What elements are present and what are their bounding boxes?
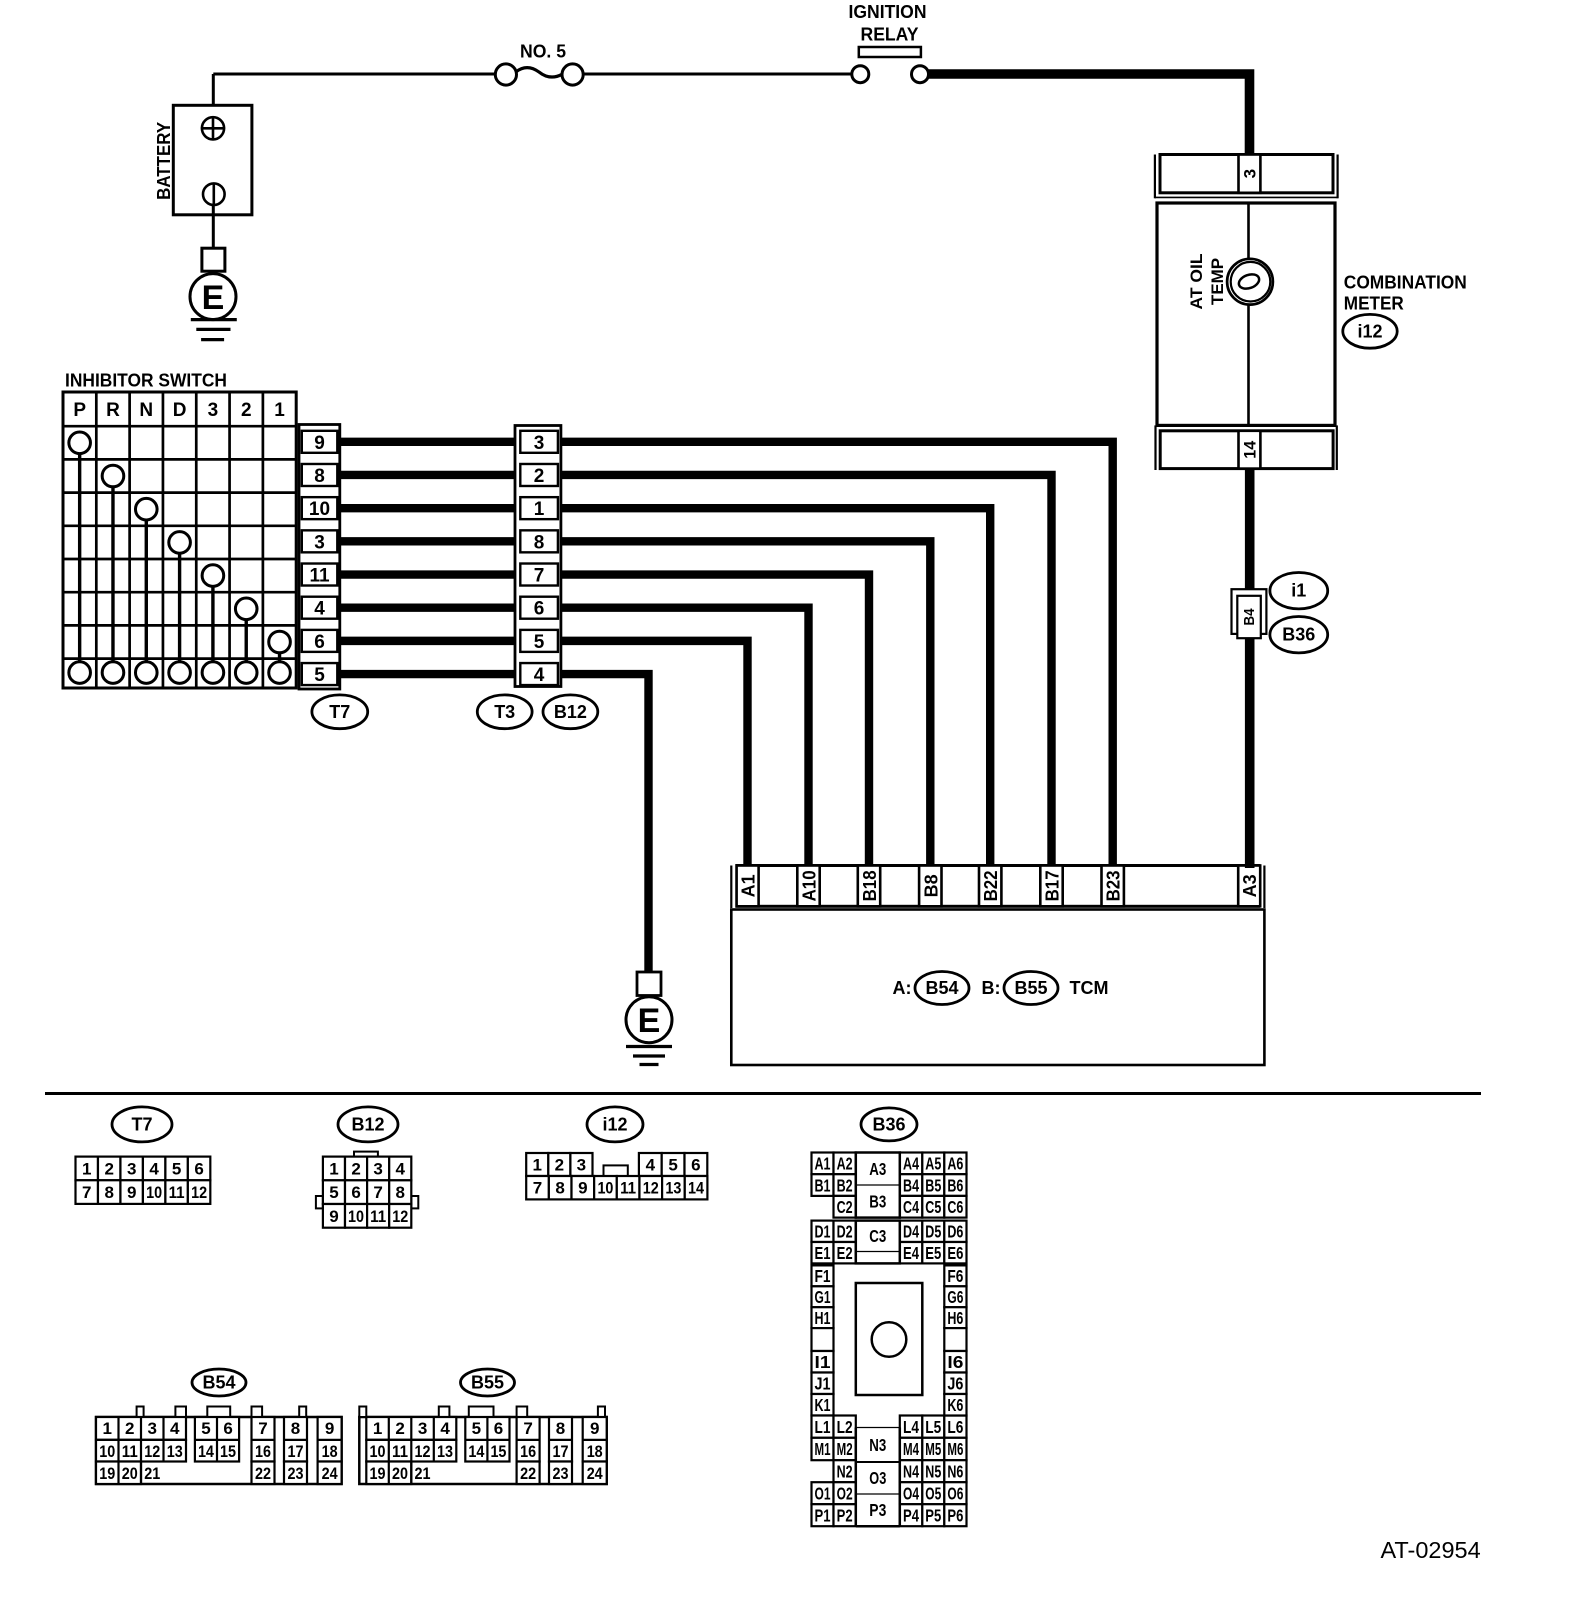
svg-text:4: 4 <box>314 599 325 620</box>
svg-text:4: 4 <box>396 1159 406 1178</box>
svg-text:22: 22 <box>520 1464 536 1483</box>
svg-text:B2: B2 <box>837 1175 853 1195</box>
svg-text:NO. 5: NO. 5 <box>520 42 566 62</box>
svg-text:B1: B1 <box>815 1175 831 1195</box>
svg-text:B54: B54 <box>925 978 958 998</box>
svg-text:D: D <box>173 400 187 421</box>
svg-text:I1: I1 <box>815 1352 831 1372</box>
svg-text:8: 8 <box>534 532 545 553</box>
svg-text:7: 7 <box>523 1419 532 1438</box>
svg-text:2: 2 <box>104 1159 113 1178</box>
svg-text:7: 7 <box>534 566 545 587</box>
svg-text:7: 7 <box>533 1179 542 1198</box>
svg-text:3: 3 <box>418 1419 427 1438</box>
svg-text:METER: METER <box>1344 294 1404 314</box>
svg-text:1: 1 <box>534 499 545 520</box>
svg-text:TEMP: TEMP <box>1208 258 1227 305</box>
svg-text:5: 5 <box>201 1419 210 1438</box>
svg-text:3: 3 <box>534 433 545 454</box>
svg-text:B17: B17 <box>1043 870 1063 901</box>
svg-text:B54: B54 <box>202 1373 235 1393</box>
svg-text:I6: I6 <box>947 1352 963 1372</box>
svg-text:3: 3 <box>148 1419 157 1438</box>
svg-text:13: 13 <box>665 1179 681 1198</box>
svg-text:21: 21 <box>144 1464 160 1483</box>
svg-text:4: 4 <box>170 1419 180 1438</box>
svg-text:3: 3 <box>127 1159 136 1178</box>
svg-text:17: 17 <box>288 1442 304 1461</box>
svg-text:O1: O1 <box>815 1483 831 1503</box>
svg-text:N6: N6 <box>947 1461 963 1481</box>
svg-text:O4: O4 <box>903 1483 919 1503</box>
svg-text:M1: M1 <box>815 1439 831 1459</box>
svg-text:P: P <box>73 400 86 421</box>
svg-text:18: 18 <box>322 1442 338 1461</box>
svg-text:L6: L6 <box>947 1417 963 1437</box>
svg-text:5: 5 <box>329 1183 338 1202</box>
svg-text:12: 12 <box>415 1442 431 1461</box>
svg-text:O3: O3 <box>869 1468 886 1488</box>
svg-text:J6: J6 <box>947 1373 963 1393</box>
svg-text:T7: T7 <box>131 1114 152 1134</box>
svg-text:22: 22 <box>255 1464 271 1483</box>
svg-text:P6: P6 <box>947 1505 963 1525</box>
svg-text:1: 1 <box>103 1419 112 1438</box>
svg-text:8: 8 <box>291 1419 300 1438</box>
svg-text:3: 3 <box>208 400 219 421</box>
svg-text:16: 16 <box>255 1442 271 1461</box>
svg-text:D1: D1 <box>815 1222 831 1242</box>
svg-text:i12: i12 <box>602 1114 627 1134</box>
svg-text:E1: E1 <box>815 1243 831 1263</box>
svg-text:B55: B55 <box>1014 978 1047 998</box>
svg-text:E: E <box>202 279 225 317</box>
svg-text:12: 12 <box>643 1179 659 1198</box>
svg-text:P1: P1 <box>815 1505 831 1525</box>
svg-text:11: 11 <box>370 1207 386 1226</box>
svg-text:D4: D4 <box>903 1222 919 1242</box>
svg-text:19: 19 <box>99 1464 115 1483</box>
svg-text:10: 10 <box>597 1179 613 1198</box>
svg-text:6: 6 <box>314 632 325 653</box>
svg-text:10: 10 <box>309 499 330 520</box>
svg-text:19: 19 <box>370 1464 386 1483</box>
svg-text:3: 3 <box>373 1159 382 1178</box>
svg-text:11: 11 <box>392 1442 408 1461</box>
svg-text:7: 7 <box>82 1183 91 1202</box>
svg-text:L4: L4 <box>903 1417 919 1437</box>
svg-text:G1: G1 <box>815 1287 831 1307</box>
svg-text:2: 2 <box>351 1159 360 1178</box>
svg-text:B18: B18 <box>860 870 880 901</box>
svg-text:E4: E4 <box>903 1243 919 1263</box>
svg-text:M4: M4 <box>903 1439 919 1459</box>
svg-text:P3: P3 <box>869 1500 886 1520</box>
svg-text:B6: B6 <box>947 1175 963 1195</box>
svg-text:5: 5 <box>172 1159 181 1178</box>
svg-text:L1: L1 <box>815 1417 831 1437</box>
svg-text:8: 8 <box>314 466 325 487</box>
svg-text:9: 9 <box>127 1183 136 1202</box>
svg-text:A1: A1 <box>815 1154 831 1174</box>
svg-text:1: 1 <box>329 1159 338 1178</box>
svg-text:15: 15 <box>490 1442 506 1461</box>
svg-text:INHIBITOR SWITCH: INHIBITOR SWITCH <box>65 371 227 391</box>
svg-text:15: 15 <box>220 1442 236 1461</box>
svg-text:G6: G6 <box>947 1287 963 1307</box>
svg-text:10: 10 <box>99 1442 115 1461</box>
svg-text:10: 10 <box>146 1183 162 1202</box>
svg-text:16: 16 <box>520 1442 536 1461</box>
svg-text:8: 8 <box>104 1183 113 1202</box>
svg-text:B3: B3 <box>869 1192 886 1212</box>
svg-text:3: 3 <box>314 532 325 553</box>
svg-text:A5: A5 <box>925 1154 941 1174</box>
svg-text:5: 5 <box>534 632 545 653</box>
svg-text:C4: C4 <box>903 1197 919 1217</box>
svg-text:10: 10 <box>348 1207 364 1226</box>
svg-text:6: 6 <box>494 1419 503 1438</box>
svg-text:2: 2 <box>395 1419 404 1438</box>
svg-text:B22: B22 <box>981 870 1001 901</box>
svg-text:i1: i1 <box>1291 581 1306 601</box>
svg-text:L2: L2 <box>837 1417 853 1437</box>
svg-text:E6: E6 <box>947 1243 963 1263</box>
svg-text:6: 6 <box>534 599 545 620</box>
svg-text:N5: N5 <box>925 1461 941 1481</box>
svg-text:B36: B36 <box>1282 625 1315 645</box>
svg-text:O5: O5 <box>925 1483 941 1503</box>
svg-text:A6: A6 <box>947 1154 963 1174</box>
svg-text:23: 23 <box>288 1464 304 1483</box>
svg-text:L5: L5 <box>925 1417 941 1437</box>
svg-text:2: 2 <box>241 400 252 421</box>
svg-text:B36: B36 <box>872 1114 905 1134</box>
svg-text:3: 3 <box>1241 169 1260 178</box>
svg-text:1: 1 <box>532 1156 541 1175</box>
svg-text:K6: K6 <box>947 1395 963 1415</box>
svg-text:A2: A2 <box>837 1154 853 1174</box>
svg-text:2: 2 <box>555 1156 564 1175</box>
svg-text:12: 12 <box>191 1183 207 1202</box>
svg-text:9: 9 <box>590 1419 599 1438</box>
svg-text:N4: N4 <box>903 1461 919 1481</box>
svg-text:6: 6 <box>351 1183 360 1202</box>
svg-text:F6: F6 <box>947 1266 963 1286</box>
svg-text:21: 21 <box>415 1464 431 1483</box>
svg-text:O6: O6 <box>947 1483 963 1503</box>
svg-text:N2: N2 <box>837 1461 853 1481</box>
svg-text:14: 14 <box>198 1442 214 1461</box>
svg-text:COMBINATION: COMBINATION <box>1344 273 1467 293</box>
svg-text:B12: B12 <box>351 1114 384 1134</box>
svg-text:3: 3 <box>577 1156 586 1175</box>
svg-text:1: 1 <box>82 1159 91 1178</box>
svg-text:14: 14 <box>688 1179 704 1198</box>
svg-text:9: 9 <box>325 1419 334 1438</box>
svg-text:9: 9 <box>329 1207 338 1226</box>
svg-text:C6: C6 <box>947 1197 963 1217</box>
svg-text:E2: E2 <box>837 1243 853 1263</box>
svg-text:E5: E5 <box>925 1243 941 1263</box>
svg-text:9: 9 <box>314 433 325 454</box>
svg-text:P5: P5 <box>925 1505 941 1525</box>
svg-text:13: 13 <box>167 1442 183 1461</box>
svg-text:11: 11 <box>122 1442 138 1461</box>
svg-text:12: 12 <box>144 1442 160 1461</box>
svg-text:23: 23 <box>553 1464 569 1483</box>
svg-text:O2: O2 <box>837 1483 853 1503</box>
svg-text:24: 24 <box>322 1464 338 1483</box>
svg-text:A:: A: <box>893 978 912 998</box>
svg-text:E: E <box>638 1002 661 1040</box>
svg-text:6: 6 <box>223 1419 232 1438</box>
svg-text:24: 24 <box>587 1464 603 1483</box>
svg-text:10: 10 <box>370 1442 386 1461</box>
svg-text:M6: M6 <box>947 1439 963 1459</box>
svg-text:A1: A1 <box>739 874 759 897</box>
svg-text:TCM: TCM <box>1070 978 1109 998</box>
svg-text:6: 6 <box>691 1156 700 1175</box>
svg-text:B5: B5 <box>925 1175 941 1195</box>
svg-text:11: 11 <box>309 566 330 587</box>
svg-text:B4: B4 <box>903 1175 919 1195</box>
svg-text:14: 14 <box>468 1442 484 1461</box>
svg-text:C5: C5 <box>925 1197 941 1217</box>
svg-text:AT OIL: AT OIL <box>1187 254 1206 310</box>
svg-text:B4: B4 <box>1241 608 1258 626</box>
svg-text:8: 8 <box>556 1419 565 1438</box>
svg-text:12: 12 <box>392 1207 408 1226</box>
svg-text:13: 13 <box>437 1442 453 1461</box>
svg-text:14: 14 <box>1241 440 1260 459</box>
svg-text:8: 8 <box>396 1183 405 1202</box>
svg-text:11: 11 <box>169 1183 185 1202</box>
svg-text:N: N <box>139 400 153 421</box>
svg-text:A3: A3 <box>1240 874 1260 897</box>
svg-text:B:: B: <box>982 978 1001 998</box>
svg-text:N3: N3 <box>869 1435 886 1455</box>
svg-text:J1: J1 <box>815 1373 831 1393</box>
svg-text:5: 5 <box>314 665 325 686</box>
svg-text:D6: D6 <box>947 1222 963 1242</box>
svg-text:17: 17 <box>553 1442 569 1461</box>
svg-text:1: 1 <box>274 400 285 421</box>
svg-text:T7: T7 <box>329 702 350 722</box>
svg-text:M2: M2 <box>837 1439 853 1459</box>
svg-text:4: 4 <box>149 1159 159 1178</box>
svg-text:B23: B23 <box>1104 870 1124 901</box>
svg-text:H1: H1 <box>815 1308 831 1328</box>
svg-text:A3: A3 <box>869 1159 886 1179</box>
svg-text:C3: C3 <box>869 1226 886 1246</box>
svg-text:R: R <box>106 400 120 421</box>
svg-text:i12: i12 <box>1357 321 1382 341</box>
svg-text:AT-02954: AT-02954 <box>1381 1537 1481 1563</box>
svg-text:B8: B8 <box>921 874 941 897</box>
svg-text:4: 4 <box>534 665 545 686</box>
svg-text:P4: P4 <box>903 1505 919 1525</box>
svg-text:BATTERY: BATTERY <box>154 122 174 200</box>
svg-text:H6: H6 <box>947 1308 963 1328</box>
svg-text:1: 1 <box>373 1419 382 1438</box>
svg-text:2: 2 <box>125 1419 134 1438</box>
svg-text:6: 6 <box>194 1159 203 1178</box>
svg-text:D5: D5 <box>925 1222 941 1242</box>
svg-text:P2: P2 <box>837 1505 853 1525</box>
svg-text:9: 9 <box>578 1179 587 1198</box>
svg-text:5: 5 <box>668 1156 677 1175</box>
svg-text:K1: K1 <box>815 1395 831 1415</box>
svg-text:4: 4 <box>646 1156 656 1175</box>
svg-text:A10: A10 <box>800 870 820 901</box>
svg-text:T3: T3 <box>494 702 515 722</box>
svg-text:20: 20 <box>392 1464 408 1483</box>
svg-text:A4: A4 <box>903 1154 919 1174</box>
svg-text:D2: D2 <box>837 1222 853 1242</box>
svg-text:8: 8 <box>555 1179 564 1198</box>
svg-text:B12: B12 <box>554 702 587 722</box>
svg-text:20: 20 <box>122 1464 138 1483</box>
svg-text:C2: C2 <box>837 1197 853 1217</box>
svg-text:4: 4 <box>440 1419 450 1438</box>
svg-text:M5: M5 <box>925 1439 941 1459</box>
svg-text:7: 7 <box>373 1183 382 1202</box>
svg-text:F1: F1 <box>815 1266 831 1286</box>
svg-text:18: 18 <box>587 1442 603 1461</box>
svg-text:2: 2 <box>534 466 545 487</box>
svg-text:B55: B55 <box>471 1373 504 1393</box>
svg-text:5: 5 <box>472 1419 481 1438</box>
svg-text:7: 7 <box>258 1419 267 1438</box>
svg-text:RELAY: RELAY <box>861 25 919 45</box>
svg-text:11: 11 <box>620 1179 636 1198</box>
svg-text:IGNITION: IGNITION <box>849 2 927 22</box>
